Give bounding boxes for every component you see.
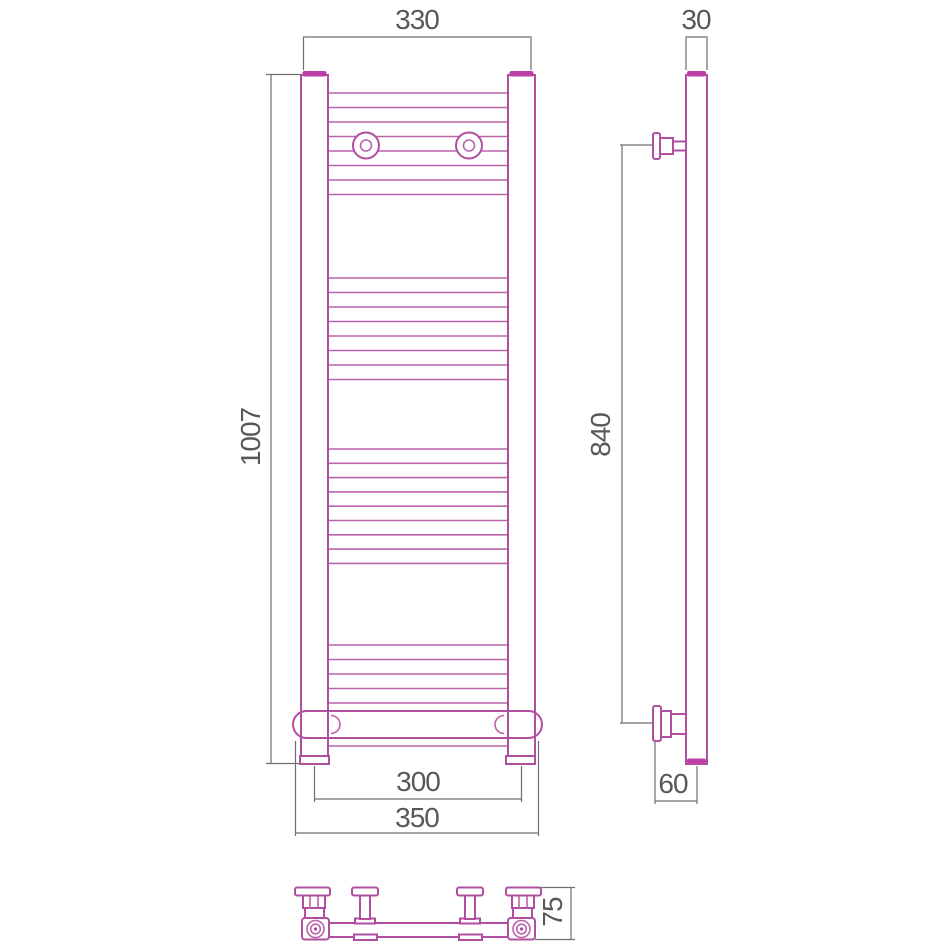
side-view	[653, 71, 707, 764]
corner-valve-left	[295, 888, 330, 940]
right-tube-cap	[510, 71, 534, 77]
dim-label-front-top-width: 330	[395, 4, 439, 35]
right-tube	[508, 75, 535, 764]
corner-valve-right	[506, 888, 541, 940]
side-tube	[686, 75, 707, 764]
side-top-bracket	[653, 133, 686, 159]
middle-bracket-left	[352, 888, 378, 924]
dim-label-front-height: 1007	[235, 407, 266, 466]
rung-group-4	[328, 645, 508, 703]
dim-label-side-bottom-offset: 60	[658, 768, 688, 799]
dim-label-front-outer-bottom-width: 350	[395, 802, 439, 833]
dim-label-side-depth: 30	[681, 4, 711, 35]
side-bottom-bracket	[653, 706, 686, 741]
left-tube-cap	[303, 71, 327, 77]
drawing-canvas: 330 1007 300 350 30 840 60 75	[0, 0, 950, 950]
middle-bracket-right	[457, 888, 483, 924]
left-foot	[300, 756, 329, 764]
side-tube-bottom-cap	[687, 759, 706, 764]
bottom-view	[295, 888, 541, 941]
middle-bracket-foot-left	[354, 935, 377, 941]
dim-label-front-inner-bottom-width: 300	[396, 766, 440, 797]
bottom-collector-tube	[293, 711, 542, 738]
rung-group-3	[328, 449, 508, 563]
technical-drawing: 330 1007 300 350 30 840 60 75	[0, 0, 950, 950]
rung-group-2	[328, 278, 508, 380]
middle-bracket-foot-right	[459, 935, 482, 941]
dim-1007-lines	[266, 75, 301, 764]
dim-label-bottom-depth: 75	[537, 897, 568, 927]
mount-bracket-right	[456, 133, 482, 159]
right-foot	[506, 756, 535, 764]
dim-840-lines	[620, 145, 653, 723]
side-tube-top-cap	[687, 71, 706, 77]
front-view	[293, 71, 542, 764]
dim-30-lines	[686, 37, 707, 70]
mount-bracket-left	[353, 133, 379, 159]
dimension-lines	[266, 37, 707, 940]
dim-label-side-mounting-height: 840	[585, 413, 616, 457]
left-tube	[301, 75, 328, 764]
dim-330-lines	[304, 37, 532, 70]
